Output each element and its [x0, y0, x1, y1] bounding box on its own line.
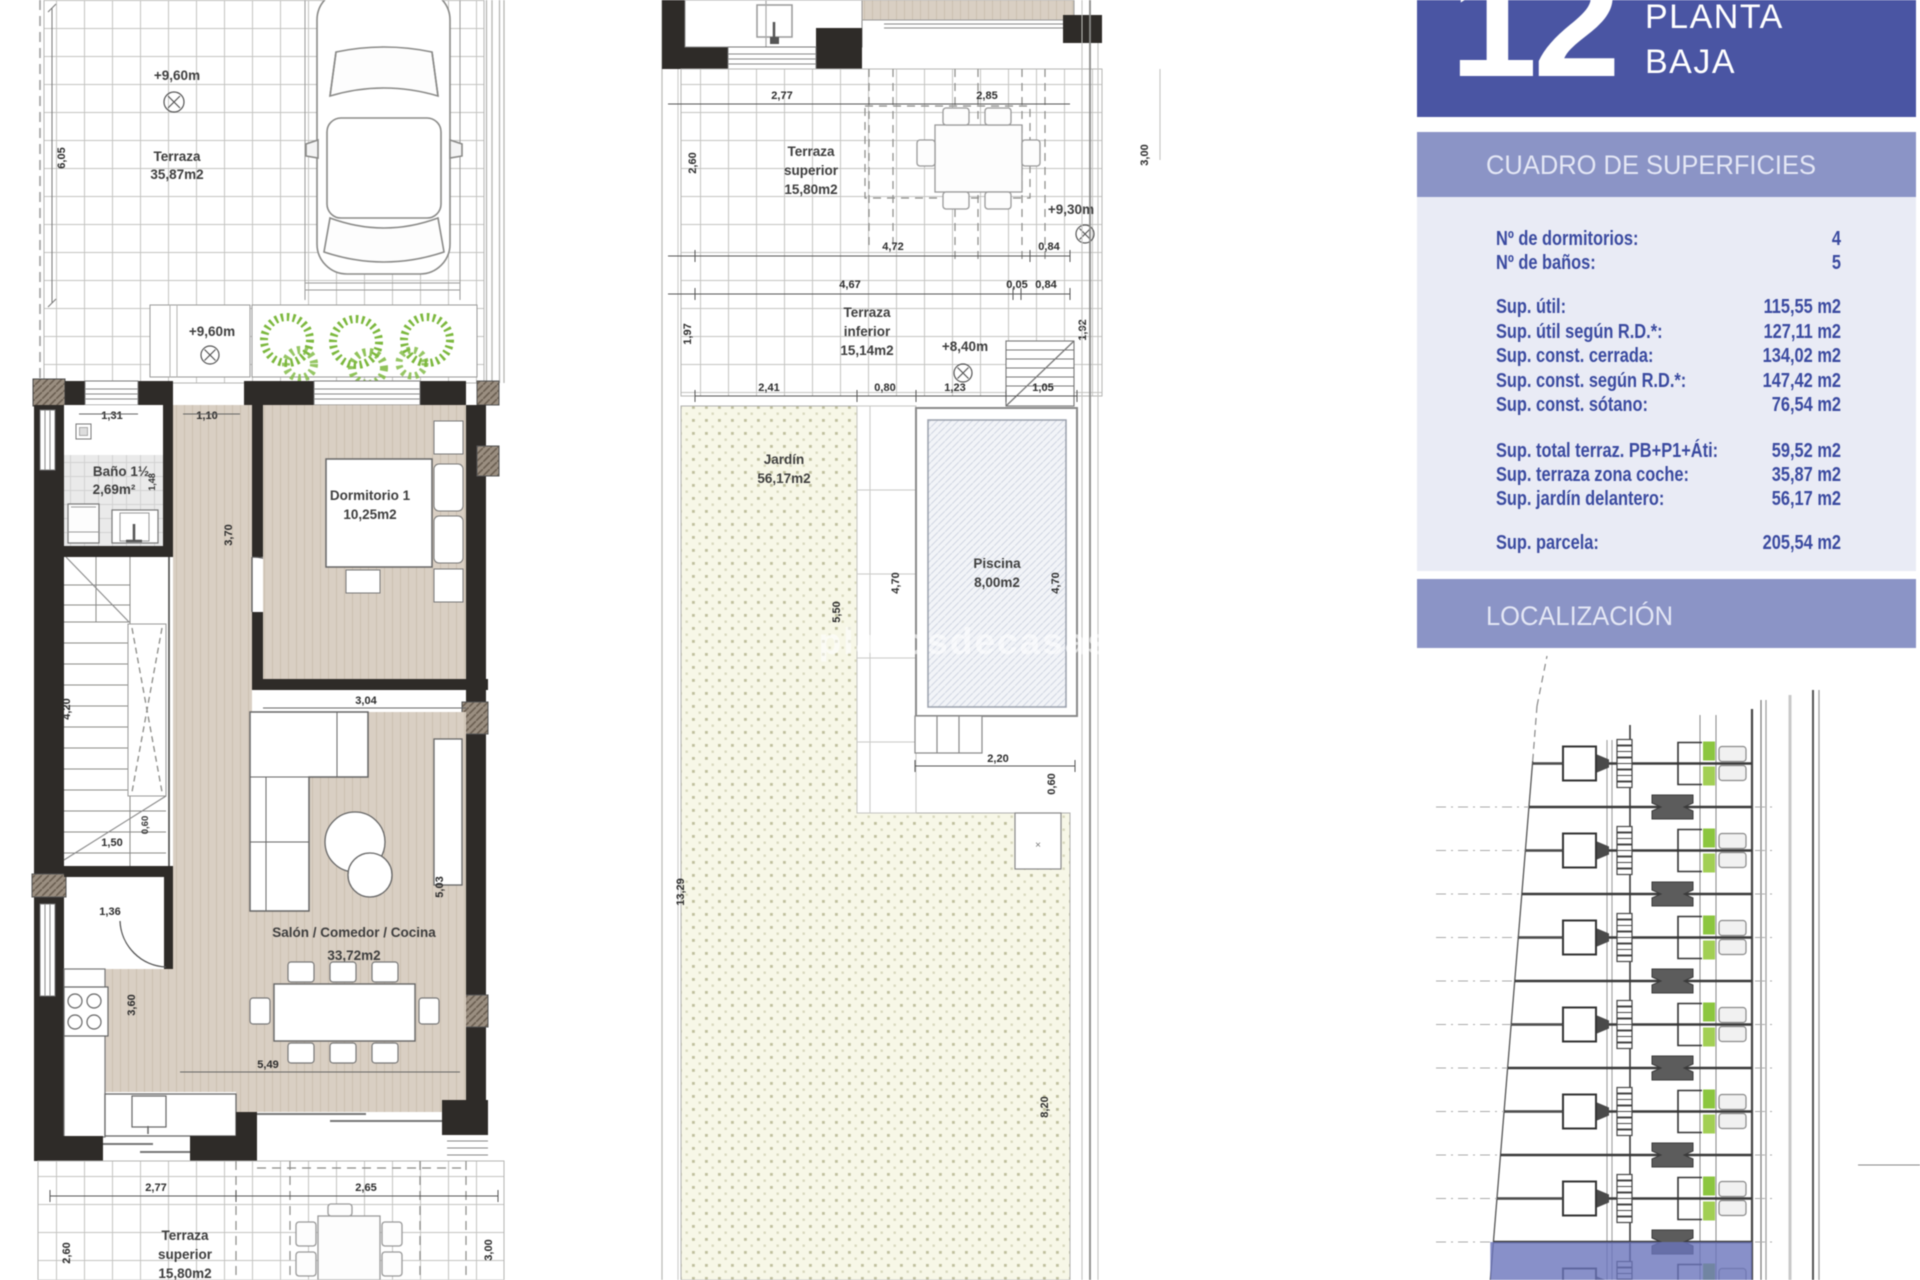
svg-text:147,42 m2: 147,42 m2 — [1763, 368, 1841, 391]
svg-text:+9,60m: +9,60m — [189, 324, 235, 339]
svg-text:10,25m2: 10,25m2 — [343, 507, 396, 522]
svg-text:1,05: 1,05 — [1032, 382, 1053, 394]
svg-text:Jardín: Jardín — [764, 452, 805, 467]
svg-text:1,31: 1,31 — [101, 410, 122, 422]
svg-text:1,36: 1,36 — [99, 906, 120, 918]
svg-text:4,72: 4,72 — [882, 241, 903, 253]
svg-text:Terraza: Terraza — [153, 149, 201, 164]
svg-text:15,80m2: 15,80m2 — [784, 182, 837, 197]
svg-text:2,41: 2,41 — [758, 382, 779, 394]
svg-text:Dormitorio 1: Dormitorio 1 — [330, 488, 411, 503]
svg-text:1,10: 1,10 — [196, 410, 217, 422]
svg-text:2,60: 2,60 — [61, 1242, 73, 1263]
svg-text:0,05: 0,05 — [1006, 279, 1027, 291]
svg-text:Sup. jardín delantero:: Sup. jardín delantero: — [1496, 486, 1664, 509]
svg-text:5,03: 5,03 — [434, 876, 446, 897]
svg-text:inferior: inferior — [844, 324, 891, 339]
svg-text:Sup. const. cerrada:: Sup. const. cerrada: — [1496, 343, 1653, 366]
svg-text:4,20: 4,20 — [61, 698, 73, 719]
svg-text:3,60: 3,60 — [126, 994, 138, 1015]
svg-text:Terraza: Terraza — [843, 305, 891, 320]
svg-text:2,77: 2,77 — [145, 1182, 166, 1194]
svg-text:Sup. útil:: Sup. útil: — [1496, 294, 1566, 317]
svg-text:2,65: 2,65 — [355, 1182, 376, 1194]
svg-text:205,54 m2: 205,54 m2 — [1763, 530, 1841, 553]
svg-text:Sup. const. según R.D.*:: Sup. const. según R.D.*: — [1496, 368, 1686, 391]
svg-text:0,84: 0,84 — [1038, 241, 1060, 253]
svg-text:2,60: 2,60 — [687, 152, 699, 173]
svg-text:56,17m2: 56,17m2 — [757, 471, 810, 486]
svg-text:Sup. terraza zona coche:: Sup. terraza zona coche: — [1496, 462, 1689, 485]
svg-text:56,17 m2: 56,17 m2 — [1772, 486, 1841, 509]
svg-text:PLANTA: PLANTA — [1645, 0, 1784, 36]
svg-text:134,02 m2: 134,02 m2 — [1763, 343, 1841, 366]
svg-text:0,84: 0,84 — [1035, 279, 1057, 291]
svg-text:1,48: 1,48 — [147, 473, 157, 491]
svg-text:Terraza: Terraza — [787, 144, 835, 159]
svg-text:Nº de dormitorios:: Nº de dormitorios: — [1496, 226, 1638, 249]
svg-text:4,67: 4,67 — [839, 279, 860, 291]
svg-text:1,50: 1,50 — [101, 837, 122, 849]
svg-text:Sup. total terraz. PB+P1+Áti:: Sup. total terraz. PB+P1+Áti: — [1496, 438, 1718, 461]
svg-text:115,55 m2: 115,55 m2 — [1764, 294, 1841, 317]
svg-text:127,11 m2: 127,11 m2 — [1764, 319, 1841, 342]
svg-text:8,20: 8,20 — [1039, 1096, 1051, 1117]
svg-text:Salón / Comedor / Cocina: Salón / Comedor / Cocina — [272, 925, 436, 940]
svg-text:15,14m2: 15,14m2 — [840, 343, 893, 358]
svg-text:0,60: 0,60 — [1046, 773, 1058, 794]
svg-text:12: 12 — [1450, 0, 1617, 110]
svg-text:4: 4 — [1832, 226, 1842, 249]
svg-text:8,00m2: 8,00m2 — [974, 575, 1020, 590]
svg-text:0,60: 0,60 — [140, 816, 151, 835]
svg-text:+9,60m: +9,60m — [154, 68, 200, 83]
svg-text:Nº de baños:: Nº de baños: — [1496, 250, 1596, 273]
svg-text:5,50: 5,50 — [831, 601, 843, 622]
svg-text:6,05: 6,05 — [56, 147, 68, 168]
svg-text:1,97: 1,97 — [682, 323, 694, 344]
svg-text:CUADRO DE SUPERFICIES: CUADRO DE SUPERFICIES — [1486, 150, 1816, 180]
svg-text:Sup. parcela:: Sup. parcela: — [1496, 530, 1599, 553]
svg-text:15,80m2: 15,80m2 — [158, 1266, 211, 1280]
svg-text:35,87 m2: 35,87 m2 — [1772, 462, 1841, 485]
svg-text:3,04: 3,04 — [355, 695, 377, 707]
svg-text:1,23: 1,23 — [944, 382, 965, 394]
svg-text:planosdecasas.es: planosdecasas.es — [819, 621, 1168, 662]
svg-text:Baño 1½: Baño 1½ — [93, 464, 149, 479]
svg-text:5,49: 5,49 — [257, 1059, 278, 1071]
svg-text:Sup. const. sótano:: Sup. const. sótano: — [1496, 392, 1648, 415]
svg-text:BAJA: BAJA — [1645, 43, 1736, 81]
svg-text:2,20: 2,20 — [987, 753, 1008, 765]
svg-text:Terraza: Terraza — [161, 1228, 209, 1243]
svg-text:13,29: 13,29 — [675, 878, 687, 906]
svg-text:5: 5 — [1832, 250, 1841, 273]
svg-text:LOCALIZACIÓN: LOCALIZACIÓN — [1486, 600, 1673, 631]
svg-text:1,92: 1,92 — [1077, 319, 1089, 340]
svg-text:33,72m2: 33,72m2 — [327, 948, 380, 963]
svg-text:×: × — [1035, 840, 1041, 851]
svg-text:2,69m²: 2,69m² — [93, 482, 136, 497]
svg-text:superior: superior — [158, 1247, 213, 1262]
svg-text:superior: superior — [784, 163, 839, 178]
svg-text:0,80: 0,80 — [874, 382, 895, 394]
svg-text:2,77: 2,77 — [771, 90, 792, 102]
svg-text:3,00: 3,00 — [1139, 144, 1151, 165]
svg-text:4,70: 4,70 — [890, 572, 902, 593]
svg-text:4,70: 4,70 — [1050, 572, 1062, 593]
svg-text:59,52 m2: 59,52 m2 — [1772, 438, 1841, 461]
svg-text:2,85: 2,85 — [976, 90, 997, 102]
svg-text:3,00: 3,00 — [483, 1239, 495, 1260]
svg-text:Sup. útil según R.D.*:: Sup. útil según R.D.*: — [1496, 319, 1663, 342]
svg-text:Piscina: Piscina — [973, 556, 1021, 571]
svg-text:+9,30m: +9,30m — [1048, 202, 1094, 217]
svg-text:+8,40m: +8,40m — [942, 339, 988, 354]
svg-text:76,54 m2: 76,54 m2 — [1772, 392, 1841, 415]
svg-text:3,70: 3,70 — [223, 524, 235, 545]
svg-text:35,87m2: 35,87m2 — [150, 167, 203, 182]
